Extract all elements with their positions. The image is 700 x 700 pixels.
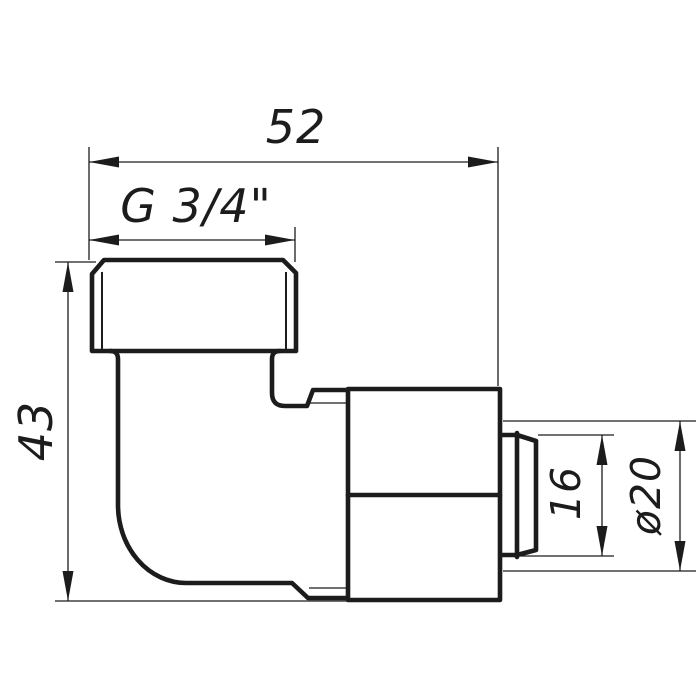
arrowhead-up	[675, 421, 686, 451]
fitting-outline	[92, 260, 536, 600]
dimension-pipe-diameter: ø20	[503, 421, 696, 571]
arrowhead-left	[89, 157, 119, 168]
hex-nut	[92, 260, 296, 351]
dimension-overall-width: 52	[89, 100, 498, 386]
pipe-end-collar	[502, 433, 536, 557]
elbow-outer-profile	[110, 351, 347, 598]
arrowhead-down	[597, 526, 608, 556]
dimension-thread-size: G 3/4"	[89, 179, 295, 262]
collar-step-outline	[502, 433, 517, 557]
hex-nut-outline	[92, 260, 296, 351]
elbow-body	[110, 351, 347, 598]
arrowhead-right	[265, 235, 295, 246]
dimension-label-insert-depth: 16	[542, 466, 590, 520]
arrowhead-up	[597, 435, 608, 465]
dimension-label-pipe-diameter: ø20	[622, 455, 670, 536]
arrowhead-left	[89, 235, 119, 246]
arrowhead-up	[63, 262, 74, 292]
elbow-inner-profile	[272, 351, 347, 406]
arrowhead-right	[468, 157, 498, 168]
dimension-overall-height: 43	[9, 262, 350, 601]
collar-chamfer-outline	[517, 435, 536, 555]
arrowhead-down	[675, 541, 686, 571]
dimension-label-overall-width: 52	[266, 100, 327, 154]
compression-nut	[348, 389, 500, 600]
elbow-fitting-drawing: 52 G 3/4" 43 16 ø20	[0, 0, 700, 700]
dimension-label-overall-height: 43	[9, 401, 63, 462]
arrowhead-down	[63, 571, 74, 601]
technical-drawing-canvas: 52 G 3/4" 43 16 ø20	[0, 0, 700, 700]
dimension-label-thread-size: G 3/4"	[120, 179, 271, 233]
